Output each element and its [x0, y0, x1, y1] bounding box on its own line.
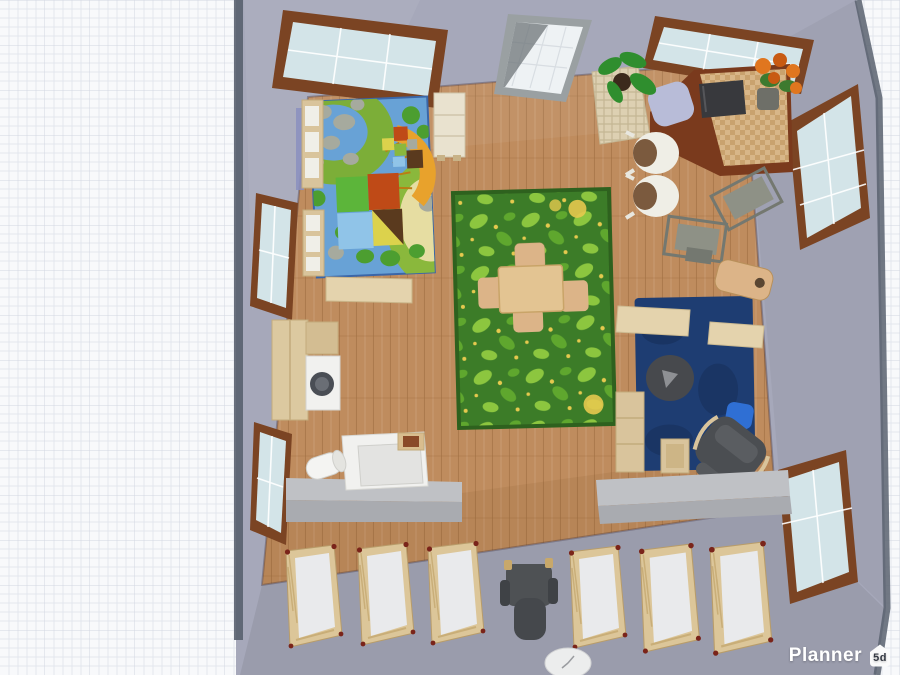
changing-unit[interactable]: [342, 432, 428, 490]
crib-4[interactable]: [569, 545, 628, 650]
crib-6[interactable]: [709, 541, 773, 656]
white-cabinet[interactable]: [434, 93, 465, 161]
side-stool[interactable]: [661, 439, 689, 473]
cubby-shelf-upper[interactable]: [302, 100, 323, 188]
bench-navy-left[interactable]: [616, 306, 690, 336]
planner5d-watermark: Planner 5d: [789, 644, 892, 667]
kids-table[interactable]: [498, 265, 564, 313]
bench-playmat[interactable]: [326, 277, 412, 303]
bean-bag[interactable]: [646, 355, 694, 401]
window-right-lower[interactable]: [778, 450, 858, 604]
logo-text: Planner: [789, 645, 862, 667]
crib-3[interactable]: [427, 541, 486, 646]
planner5d-viewport[interactable]: Planner 5d: [0, 0, 900, 675]
washing-machine[interactable]: [306, 356, 340, 410]
cubby-shelf-lower[interactable]: [303, 210, 324, 276]
bench-navy-right[interactable]: [708, 322, 764, 348]
window-left-lower[interactable]: [250, 422, 292, 545]
window-left-upper[interactable]: [250, 193, 298, 320]
tv[interactable]: [699, 80, 746, 118]
bookshelf-small[interactable]: [616, 392, 644, 472]
wall-clock[interactable]: [545, 648, 591, 675]
crib-5[interactable]: [639, 543, 701, 654]
crib-1[interactable]: [285, 544, 344, 649]
svg-text:5d: 5d: [873, 652, 887, 664]
wall-edge-left: [234, 0, 243, 640]
planner5d-house-icon: 5d: [868, 644, 892, 667]
crib-2[interactable]: [357, 542, 416, 647]
